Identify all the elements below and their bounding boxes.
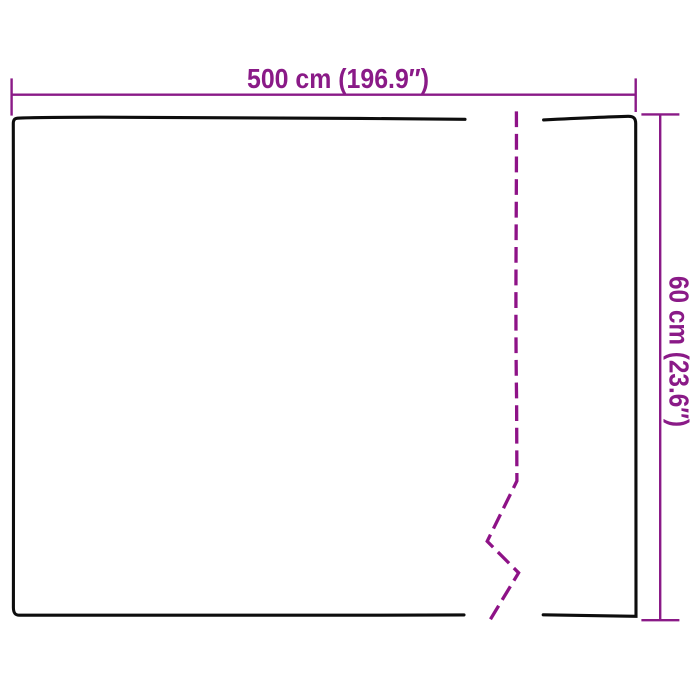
svg-text:500 cm (196.9″): 500 cm (196.9″) xyxy=(247,63,429,94)
svg-text:60 cm (23.6″): 60 cm (23.6″) xyxy=(664,276,695,427)
